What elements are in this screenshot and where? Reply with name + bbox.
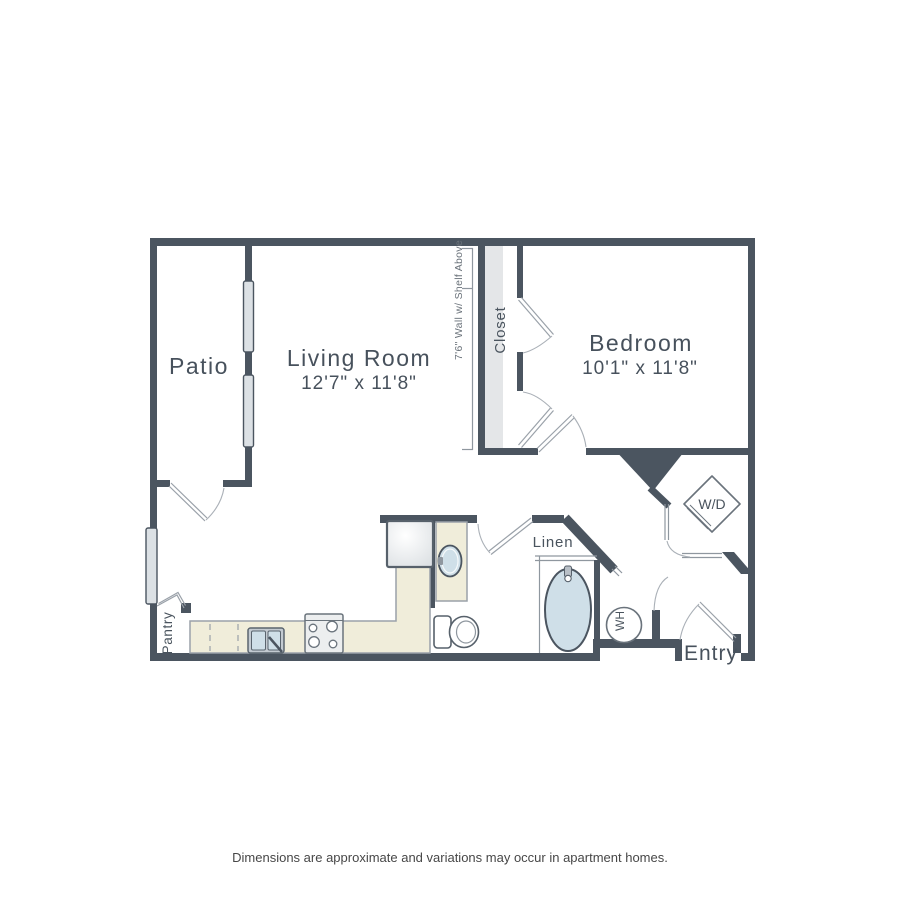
pantry-label: Pantry (160, 612, 175, 655)
bathroom-door (478, 518, 533, 555)
wh-door-arc (654, 577, 668, 611)
patio-door (169, 483, 224, 521)
floor-plan: Patio Living Room 12'7" x 11'8" Bedroom … (0, 0, 900, 900)
patio-bottom-wall-left (150, 480, 170, 487)
vanity-sink (438, 546, 462, 577)
water-heater-label: WH (613, 611, 627, 631)
linen-label: Linen (533, 534, 574, 551)
closet-right-wall-top (517, 246, 523, 298)
closet-label: Closet (492, 306, 509, 353)
wd-door-arc (667, 541, 690, 557)
closet-right-wall-mid (517, 352, 523, 391)
floor-plan-page: Patio Living Room 12'7" x 11'8" Bedroom … (0, 0, 900, 900)
living-room-label: Living Room (287, 345, 431, 371)
wh-door-jamb (652, 610, 660, 640)
exterior-wall-bottom (150, 653, 600, 661)
closet-left-wall (478, 246, 485, 455)
wh-closet-bottom-wall (593, 639, 682, 648)
angled-wall-segment (650, 488, 669, 506)
closet-door-upper (519, 298, 554, 354)
bedroom-dims: 10'1" x 11'8" (582, 358, 698, 379)
closet-door-lower (519, 392, 554, 448)
window-patio-upper (244, 281, 254, 352)
bottom-wall-step-right (675, 639, 682, 661)
angled-wall-triangle (613, 448, 687, 491)
patio-bottom-wall-right (223, 480, 252, 487)
kitchen-sink (248, 628, 284, 653)
entry-door (680, 602, 736, 642)
closet-bottom-wall (478, 448, 523, 455)
bedroom-label: Bedroom (589, 330, 693, 356)
windows (146, 281, 254, 604)
wall-note-label: 7'6" Wall w/ Shelf Above (453, 240, 465, 360)
refrigerator (387, 521, 433, 567)
disclaimer-text: Dimensions are approximate and variation… (232, 850, 668, 865)
living-room-dims: 12'7" x 11'8" (301, 373, 417, 394)
bedroom-door (537, 415, 586, 453)
linen-top-wall (532, 515, 564, 523)
washer-dryer-label: W/D (698, 496, 725, 512)
bedroom-bottom-wall-stub (523, 448, 538, 455)
stove (305, 614, 343, 653)
bottom-wall-corner (741, 653, 755, 661)
patio-label: Patio (169, 353, 229, 379)
window-kitchen (146, 528, 157, 604)
tub-wh-divider-wall (594, 560, 600, 648)
kitchen (190, 521, 433, 653)
window-patio-lower (244, 375, 254, 447)
entry-label: Entry (684, 642, 738, 665)
toilet (434, 616, 479, 648)
bathtub (545, 566, 591, 651)
